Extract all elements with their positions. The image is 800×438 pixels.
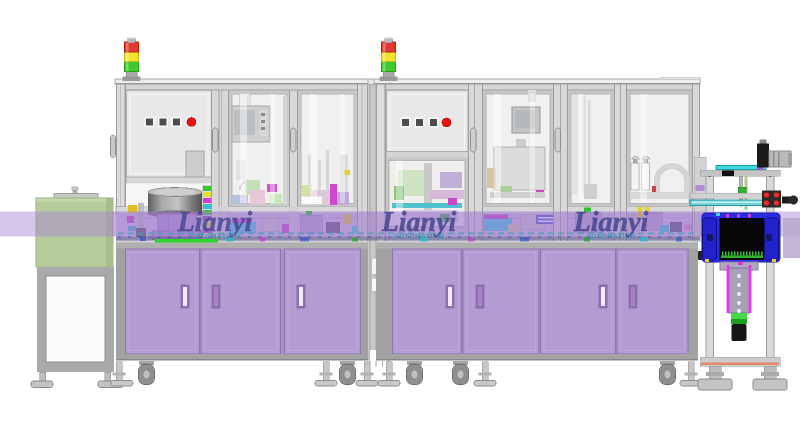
svg-text:AUTOMATION: AUTOMATION — [190, 234, 240, 241]
svg-text:AUTOMATION: AUTOMATION — [586, 234, 636, 241]
svg-text:AUTOMATION: AUTOMATION — [394, 234, 444, 241]
